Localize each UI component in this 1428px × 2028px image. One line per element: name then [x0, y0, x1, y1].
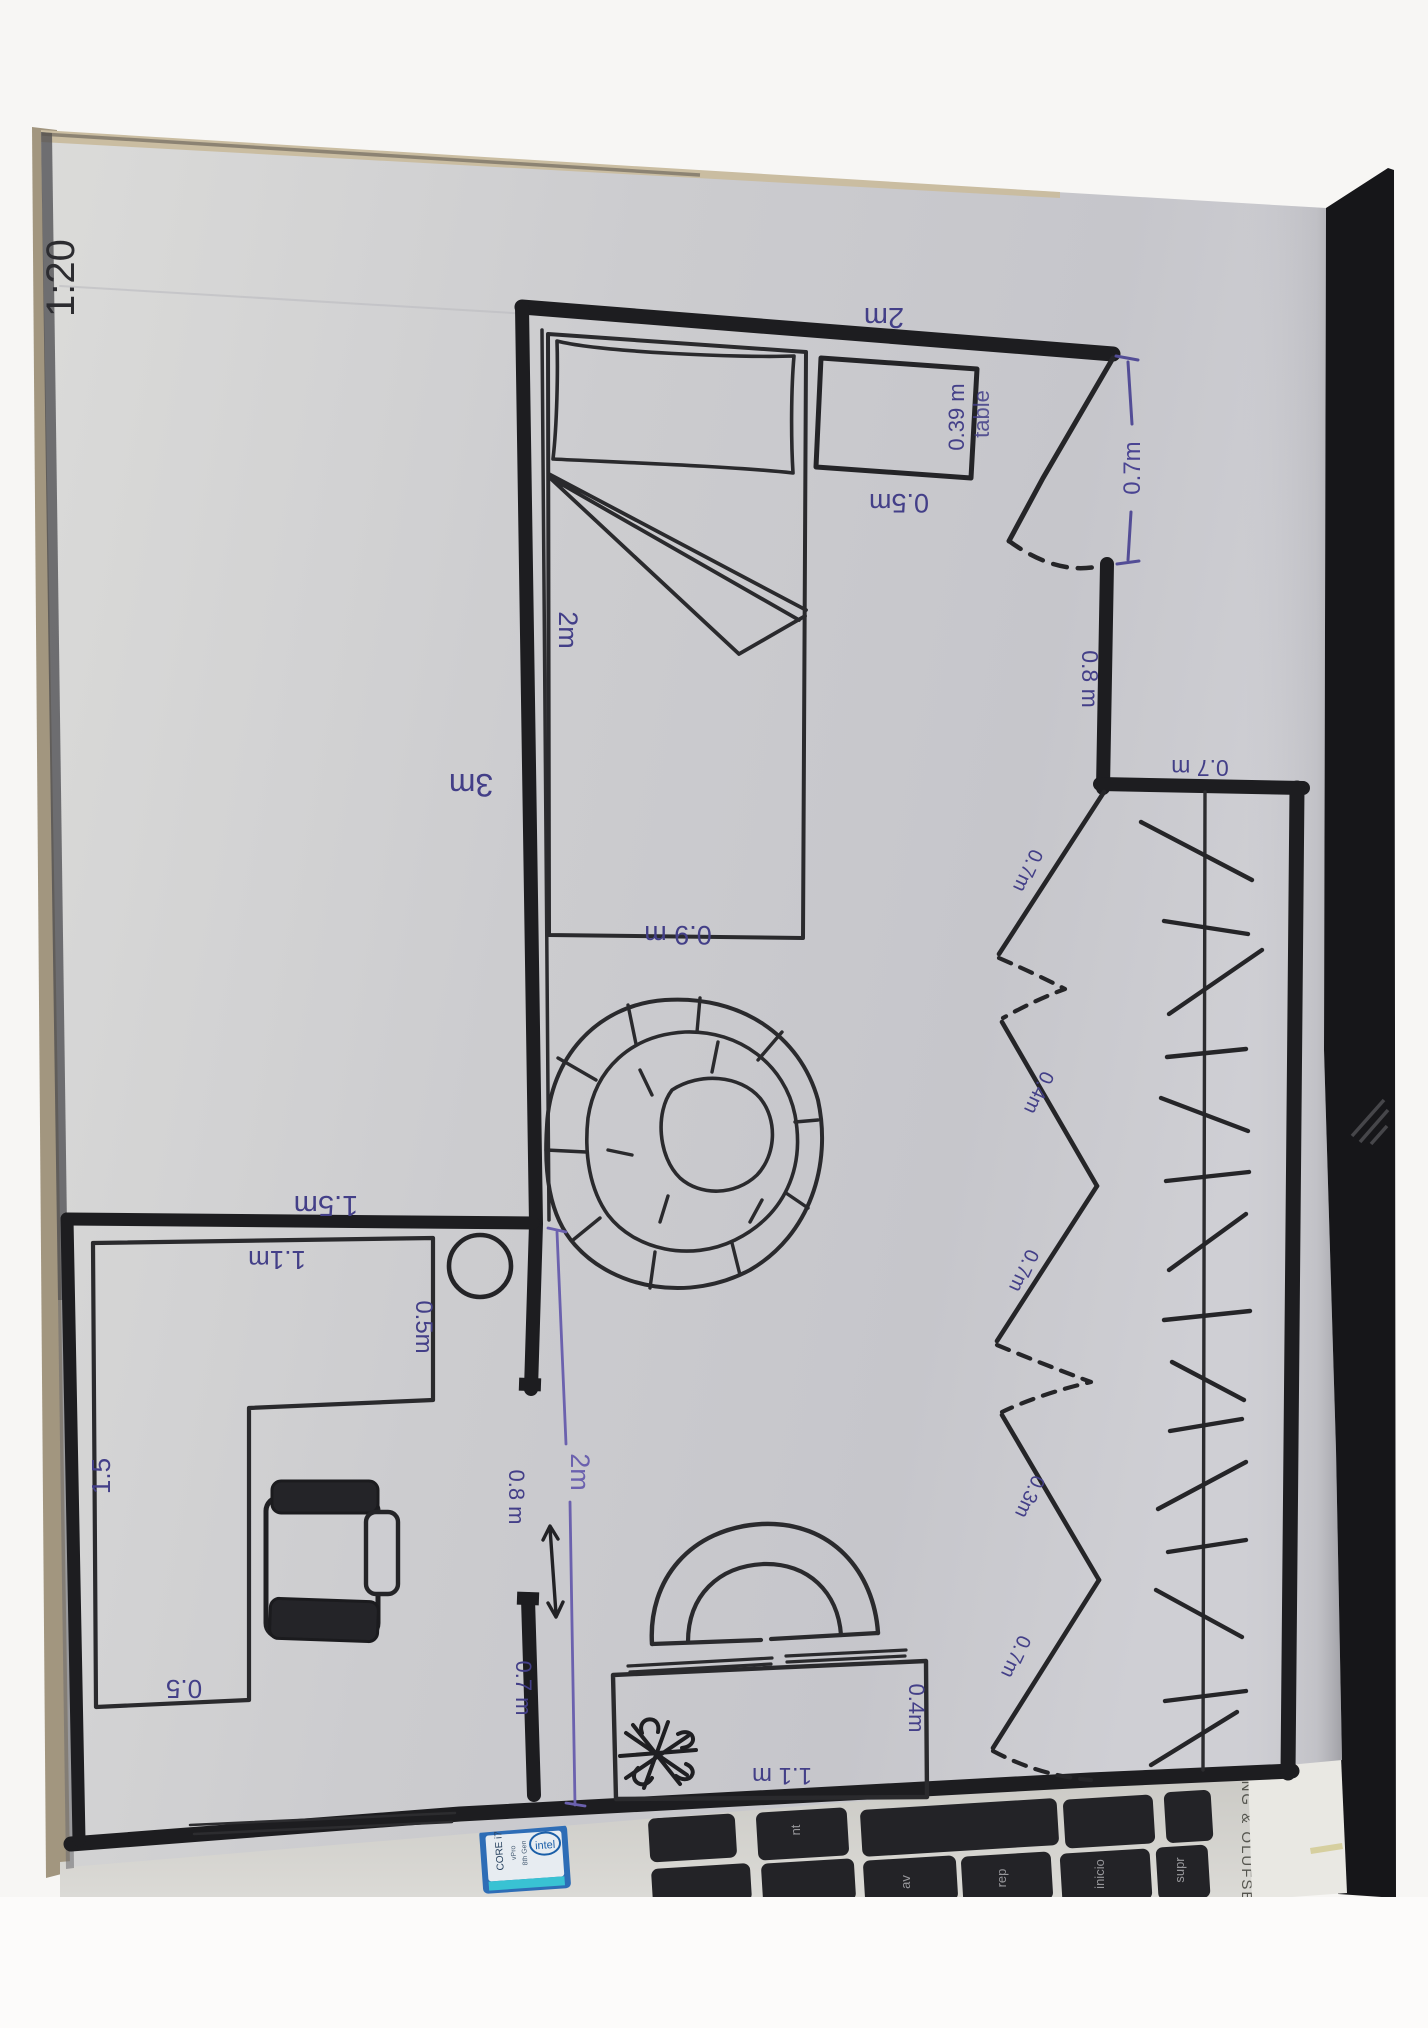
svg-text:0.7m: 0.7m — [1119, 441, 1146, 494]
svg-text:1.1m: 1.1m — [248, 1245, 306, 1275]
svg-text:0.7 m: 0.7 m — [1171, 755, 1229, 781]
svg-text:0.4m: 0.4m — [904, 1684, 929, 1733]
svg-text:rep: rep — [994, 1869, 1009, 1888]
svg-text:2m: 2m — [565, 1453, 595, 1491]
svg-text:av: av — [898, 1875, 913, 1889]
svg-text:inicio: inicio — [1092, 1859, 1107, 1889]
svg-text:0.7 m: 0.7 m — [511, 1660, 536, 1715]
svg-text:supr: supr — [1172, 1857, 1187, 1883]
svg-text:vPro: vPro — [510, 1845, 518, 1860]
svg-text:2m: 2m — [553, 611, 583, 649]
svg-text:intel: intel — [535, 1839, 556, 1852]
svg-text:1.5m: 1.5m — [294, 1189, 358, 1221]
svg-text:0.8 m: 0.8 m — [504, 1469, 529, 1524]
svg-text:0.5m: 0.5m — [869, 488, 929, 518]
svg-text:1.1 m: 1.1 m — [752, 1762, 812, 1789]
svg-text:1:20: 1:20 — [39, 239, 83, 317]
svg-text:0.39 m: 0.39 m — [944, 383, 969, 450]
svg-text:0.9 m: 0.9 m — [644, 920, 712, 950]
svg-text:0.5m: 0.5m — [410, 1300, 437, 1353]
svg-text:nt: nt — [788, 1824, 803, 1835]
svg-text:1.5: 1.5 — [86, 1458, 116, 1494]
svg-text:0.8 m: 0.8 m — [1077, 650, 1103, 708]
svg-text:table: table — [969, 390, 994, 438]
svg-text:3m: 3m — [449, 767, 493, 803]
svg-text:2m: 2m — [864, 301, 904, 333]
svg-text:0.5: 0.5 — [166, 1674, 202, 1704]
